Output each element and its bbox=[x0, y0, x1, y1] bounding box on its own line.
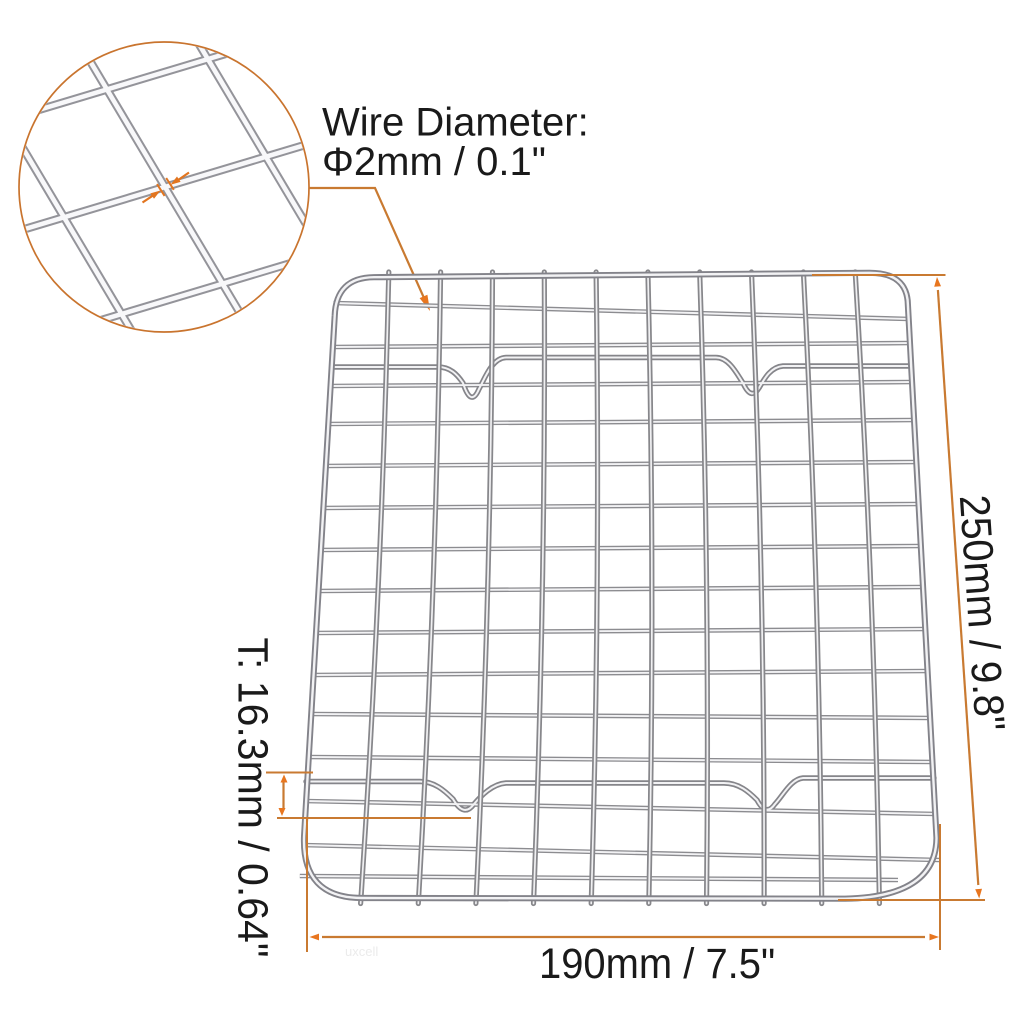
svg-text:Φ2mm / 0.1": Φ2mm / 0.1" bbox=[322, 140, 546, 184]
svg-text:190mm / 7.5": 190mm / 7.5" bbox=[539, 940, 775, 987]
svg-text:T: 16.3mm / 0.64": T: 16.3mm / 0.64" bbox=[229, 638, 277, 958]
svg-text:uxcell: uxcell bbox=[345, 944, 378, 959]
svg-text:Wire Diameter:: Wire Diameter: bbox=[322, 100, 589, 144]
